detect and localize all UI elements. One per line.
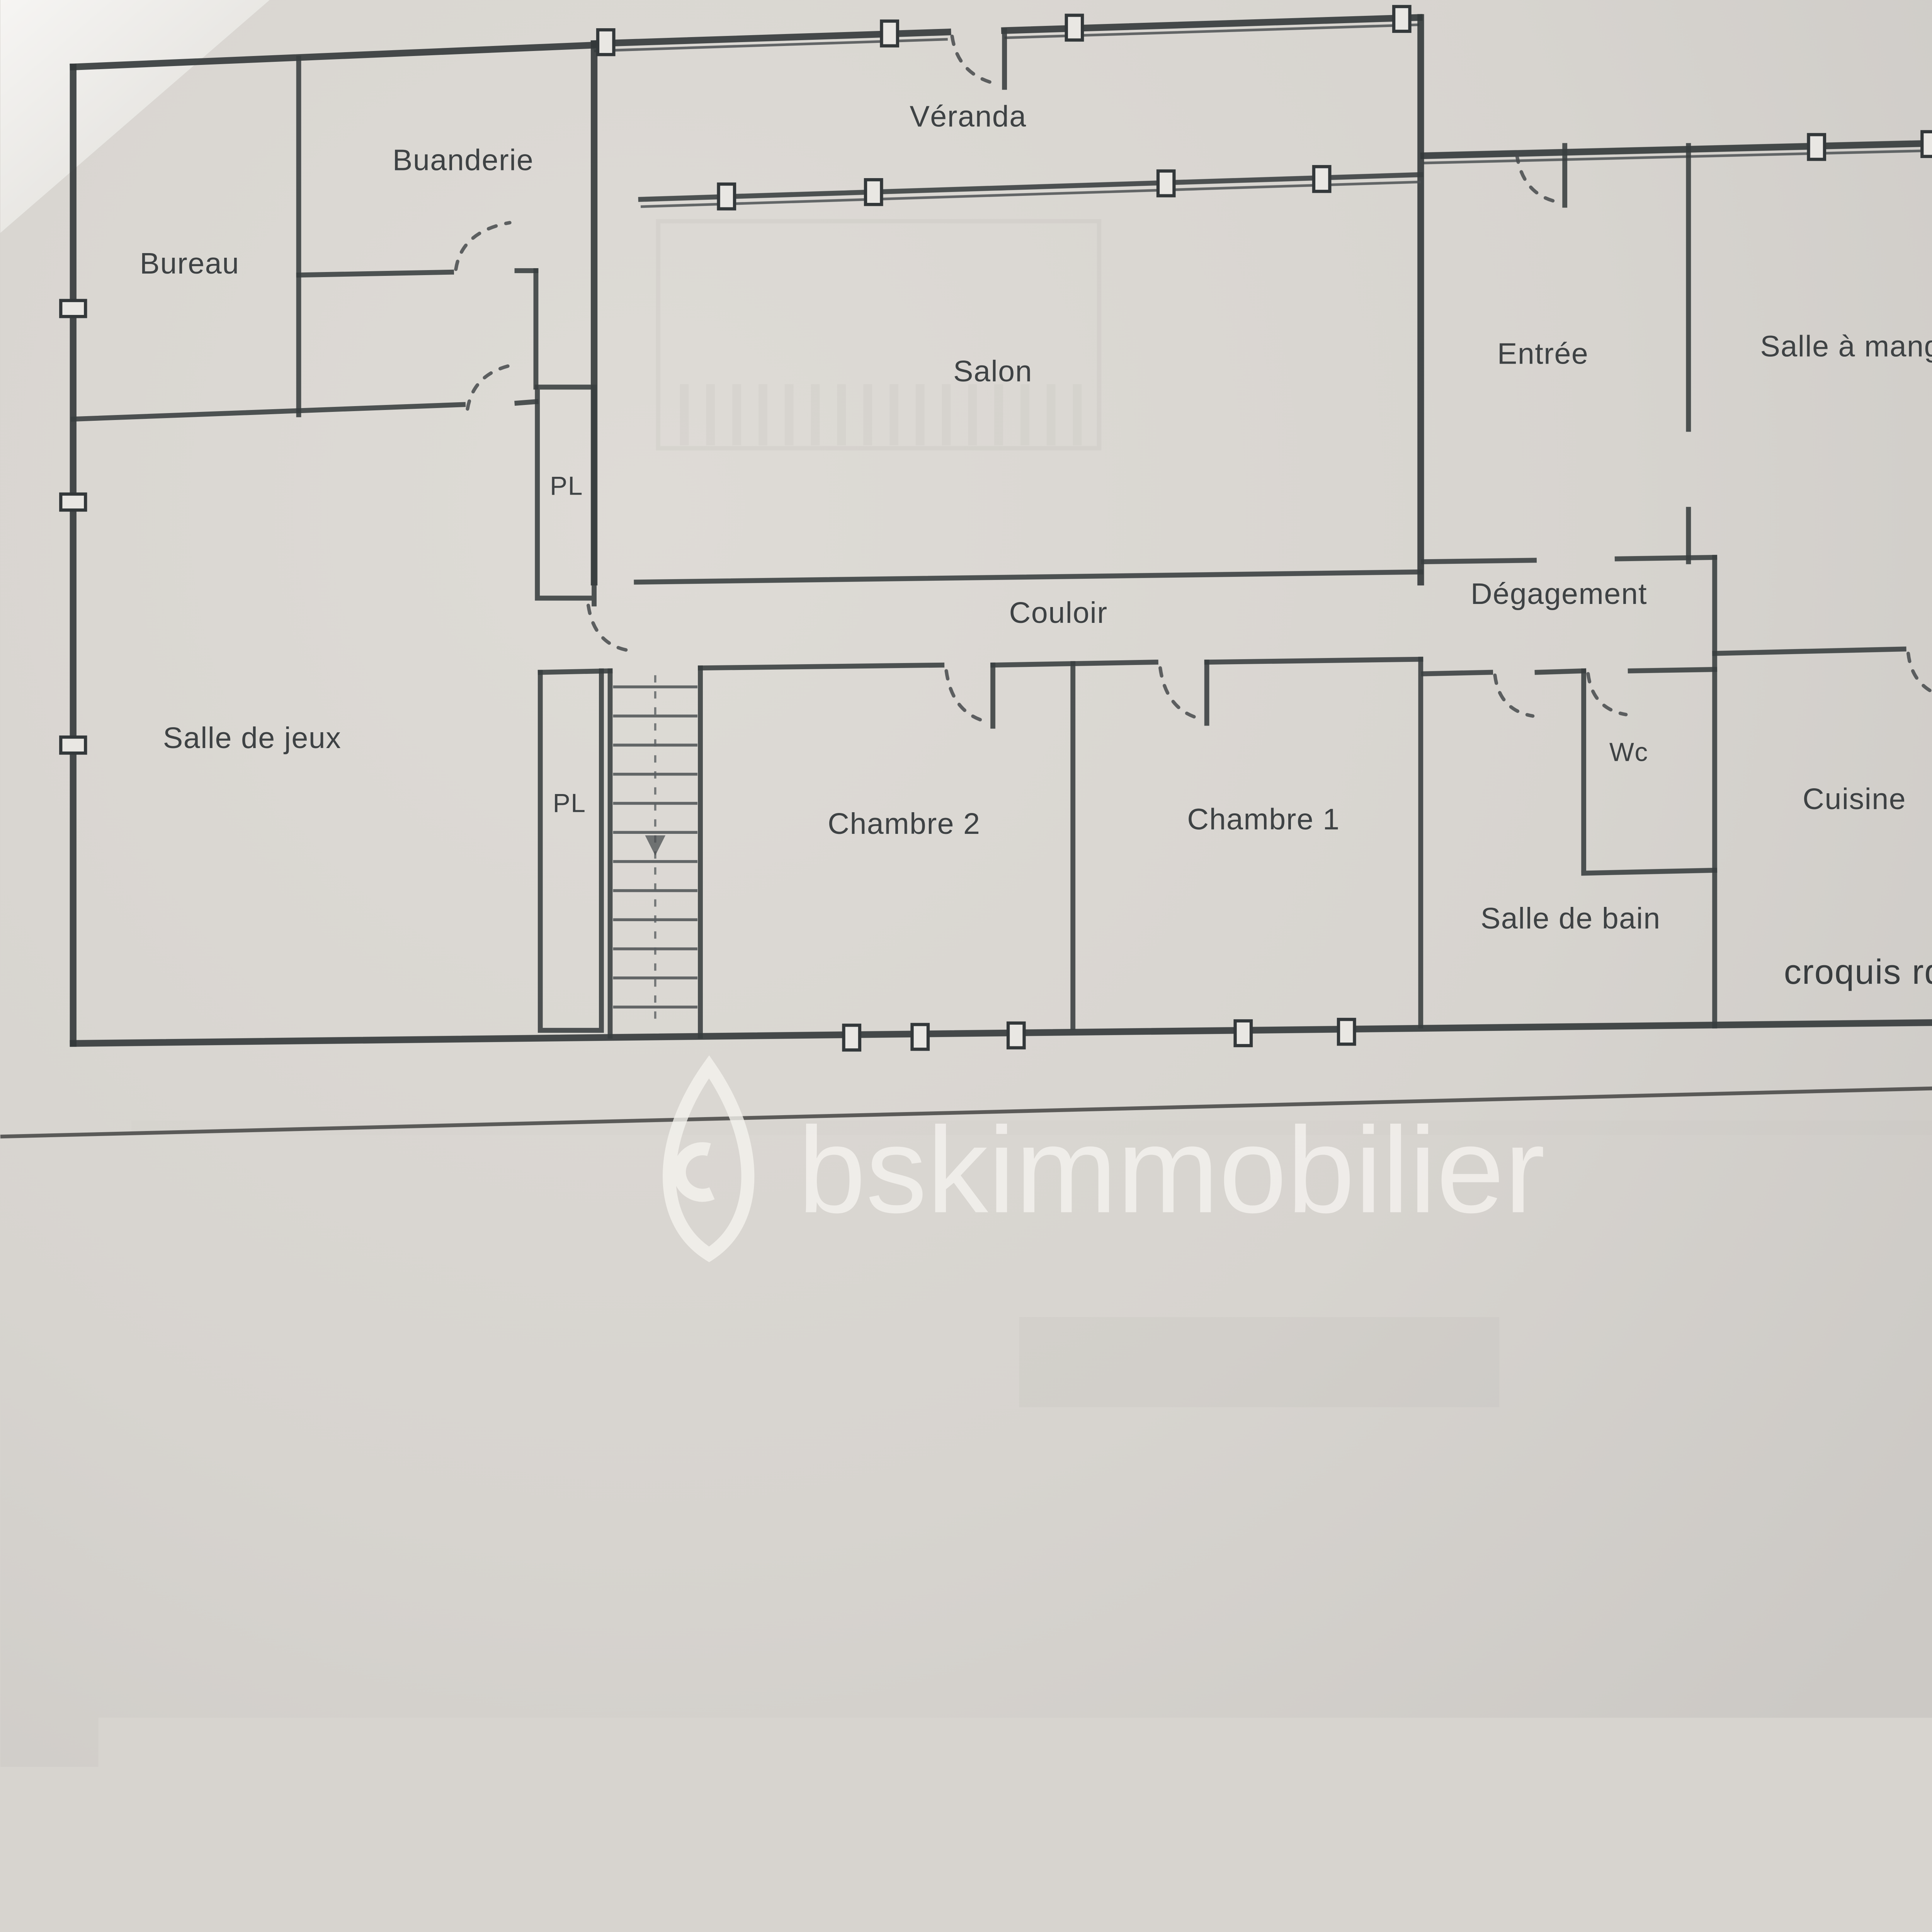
room-label-veranda: Véranda xyxy=(910,100,1026,133)
room-label-pl-droit: PL xyxy=(1048,1599,1081,1628)
room-label-bureau: Bureau xyxy=(140,247,240,280)
room-label-pl-bas: PL xyxy=(553,789,586,818)
room-label-couloir: Couloir xyxy=(1009,596,1107,629)
room-label-salle-de-jeux: Salle de jeux xyxy=(163,721,342,755)
room-label-wc: Wc xyxy=(1609,738,1648,767)
room-label-cuisine: Cuisine xyxy=(1803,782,1906,816)
room-label-chambre2: Chambre 2 xyxy=(828,807,980,840)
room-label-pl-haut: PL xyxy=(550,472,583,501)
floor-plan-page: bskimmobilier xyxy=(0,0,1932,1932)
room-label-chambre4: Chambre 4 xyxy=(314,1865,467,1898)
floor-plan-canvas: bskimmobilier xyxy=(0,0,1932,1932)
room-label-salle-de-bain: Salle de bain xyxy=(1481,902,1661,935)
caption-rdc: croquis rdc xyxy=(1784,952,1932,992)
room-label-chambre1: Chambre 1 xyxy=(1187,803,1340,836)
room-label-palier: 1er étage - Palier xyxy=(371,1477,611,1510)
room-label-chambre3: Chambre 3 xyxy=(940,1859,1092,1893)
paper-background xyxy=(0,0,1932,1932)
room-label-degagement: Dégagement xyxy=(1471,577,1647,611)
room-label-entree: Entrée xyxy=(1497,337,1588,371)
room-label-pl-gauche: PL xyxy=(398,1671,432,1700)
room-label-salon: Salon xyxy=(953,355,1032,388)
room-label-buanderie: Buanderie xyxy=(393,144,534,177)
watermark-text: bskimmobilier xyxy=(798,1102,1545,1238)
room-label-salle-a-manger: Salle à manger xyxy=(1760,330,1932,363)
room-label-salle-eau-wc: Salle d'eau + Wc xyxy=(945,1371,1178,1404)
